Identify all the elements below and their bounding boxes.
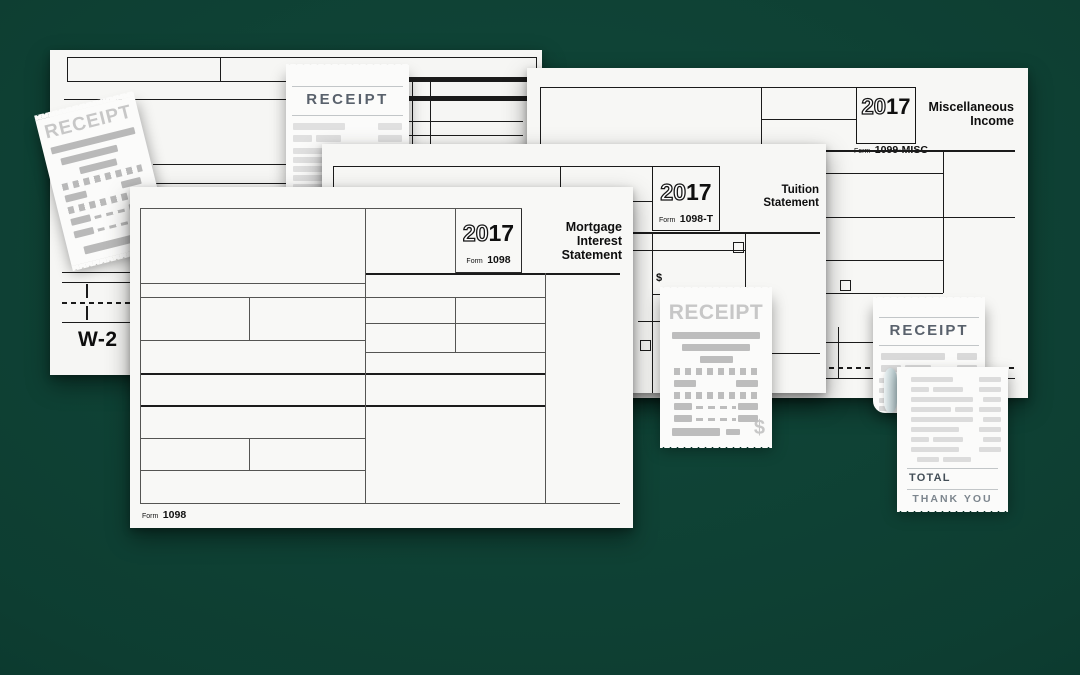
receipt-bar <box>378 135 402 142</box>
receipt-bar <box>73 227 94 239</box>
receipt-middle: RECEIPT $ <box>660 292 772 443</box>
form-line <box>67 57 536 58</box>
receipt-bar <box>983 417 1001 422</box>
form-line <box>408 96 529 101</box>
receipt-bar <box>674 415 692 422</box>
receipt-bar <box>983 397 1001 402</box>
receipt-dash-row <box>696 406 736 409</box>
receipt-dash-row <box>97 221 130 232</box>
form-title: MortgageInterestStatement <box>562 220 622 262</box>
receipt-bar <box>70 214 91 226</box>
receipt-bar <box>672 332 760 339</box>
receipt-bar <box>911 377 953 382</box>
form-line <box>365 352 545 353</box>
dollar-sign: $ <box>656 272 662 284</box>
form-1098: 2017 Form 1098 MortgageInterestStatement… <box>130 187 633 528</box>
receipt-bar <box>881 353 945 360</box>
form-line <box>249 297 250 340</box>
form-line <box>826 217 1015 218</box>
receipt-bar <box>674 403 692 410</box>
receipt-dashed-bar <box>674 392 758 399</box>
tax-forms-illustration: W-2 RECEIPT RECEIPT 2017 Form 1099-MISC … <box>0 0 1080 675</box>
receipt-bar <box>979 387 1001 392</box>
form-line <box>408 135 523 136</box>
form-line <box>761 119 856 120</box>
receipt-bar <box>378 123 402 130</box>
form-line <box>140 208 141 503</box>
form-line <box>540 87 856 88</box>
receipt-dash-row <box>94 208 127 219</box>
receipt-bar <box>293 166 323 172</box>
receipt-bar <box>933 437 963 442</box>
form-line <box>62 322 135 323</box>
form-title: MiscellaneousIncome <box>929 100 1014 128</box>
receipt-right-front: TOTAL THANK YOU <box>897 367 1008 507</box>
receipt-bar <box>738 403 758 410</box>
form-line <box>630 250 745 251</box>
receipt-bar <box>957 353 977 360</box>
receipt-bar <box>979 407 1001 412</box>
form-line <box>249 438 250 470</box>
receipt-bar <box>700 356 733 363</box>
w2-form-label: W-2 <box>78 328 118 352</box>
receipt-bar <box>911 427 959 432</box>
footer-form-label: Form 1098 <box>142 505 186 523</box>
form-line <box>838 327 839 378</box>
total-label: TOTAL <box>909 472 951 484</box>
receipt-bar <box>979 447 1001 452</box>
receipt-dashed-bar <box>674 368 758 375</box>
receipt-bar <box>911 417 973 422</box>
form-line <box>62 282 130 283</box>
form-line <box>140 470 365 471</box>
receipt-bar <box>933 387 963 392</box>
receipt-bar <box>682 344 750 351</box>
form-line <box>430 77 431 145</box>
tax-year: 2017 <box>862 96 911 118</box>
year-box: 2017 Form 1098 <box>455 208 522 273</box>
form-line <box>333 166 652 167</box>
form-line <box>140 405 545 407</box>
receipt-bar <box>955 407 973 412</box>
receipt-bar <box>293 135 312 142</box>
receipt-bar <box>672 428 720 436</box>
year-box: 2017 <box>856 87 916 144</box>
form-line <box>365 208 366 503</box>
form-line <box>408 121 523 122</box>
form-line <box>86 284 88 298</box>
receipt-bar <box>983 437 1001 442</box>
receipt-rule <box>907 489 998 490</box>
form-line <box>86 306 88 320</box>
receipt-bar <box>911 397 973 402</box>
receipt-bar <box>943 457 971 462</box>
form-number-label: Form 1098 <box>466 250 510 268</box>
receipt-bar <box>911 437 929 442</box>
form-line <box>333 166 334 188</box>
receipt-rule <box>879 345 979 346</box>
receipt-bar <box>979 427 1001 432</box>
checkbox <box>840 280 851 291</box>
form-line <box>826 293 943 294</box>
form-number-label: Form 1098-T <box>659 209 713 227</box>
receipt-title: RECEIPT <box>286 91 409 108</box>
form-line <box>540 87 541 147</box>
receipt-bar <box>293 123 345 130</box>
year-box: 2017 Form 1098-T <box>652 166 720 231</box>
receipt-bar <box>726 429 740 435</box>
receipt-bar <box>64 190 87 202</box>
receipt-dash-row <box>696 418 736 421</box>
receipt-bar <box>293 148 323 154</box>
receipt-bar <box>316 135 341 142</box>
form-line <box>153 164 286 165</box>
form-line <box>408 77 529 82</box>
form-line <box>633 201 652 202</box>
thank-you-label: THANK YOU <box>897 493 1008 505</box>
form-line <box>455 297 456 352</box>
form-number-label: Form 1099-MISC <box>854 140 928 158</box>
form-line <box>140 208 522 209</box>
receipt-rule <box>907 468 998 469</box>
form-line <box>62 272 130 273</box>
receipt-bar <box>911 447 959 452</box>
form-line <box>560 166 561 188</box>
tax-year: 2017 <box>463 222 514 245</box>
receipt-bar <box>979 377 1001 382</box>
form-line <box>455 208 456 273</box>
receipt-bar <box>917 457 939 462</box>
form-line <box>140 283 365 284</box>
receipt-bar <box>911 387 929 392</box>
receipt-bar <box>293 157 323 163</box>
receipt-page-curl <box>884 368 897 413</box>
form-line <box>140 340 365 341</box>
form-line <box>943 150 944 293</box>
form-line <box>220 57 221 82</box>
checkbox <box>640 340 651 351</box>
receipt-bar <box>736 380 758 387</box>
receipt-rule <box>879 317 979 318</box>
receipt-bar <box>911 407 951 412</box>
form-line <box>140 373 545 375</box>
form-line <box>826 173 943 174</box>
form-dashed-line <box>62 302 130 304</box>
form-title: TuitionStatement <box>763 184 819 210</box>
tax-year: 2017 <box>660 181 711 204</box>
form-line <box>140 503 620 504</box>
form-line <box>412 77 413 145</box>
form-line <box>545 273 546 503</box>
receipt-bar <box>293 175 323 181</box>
form-line <box>826 260 943 261</box>
receipt-title: RECEIPT <box>660 301 772 325</box>
receipt-rule <box>292 86 403 87</box>
form-line <box>140 297 545 298</box>
form-line <box>140 438 365 439</box>
receipt-rule <box>292 115 403 116</box>
form-line <box>365 273 620 275</box>
form-line <box>652 232 653 393</box>
checkbox <box>733 242 744 253</box>
receipt-bar <box>738 415 758 422</box>
receipt-bar <box>674 380 696 387</box>
form-line <box>67 57 68 82</box>
receipt-title: RECEIPT <box>873 322 985 339</box>
